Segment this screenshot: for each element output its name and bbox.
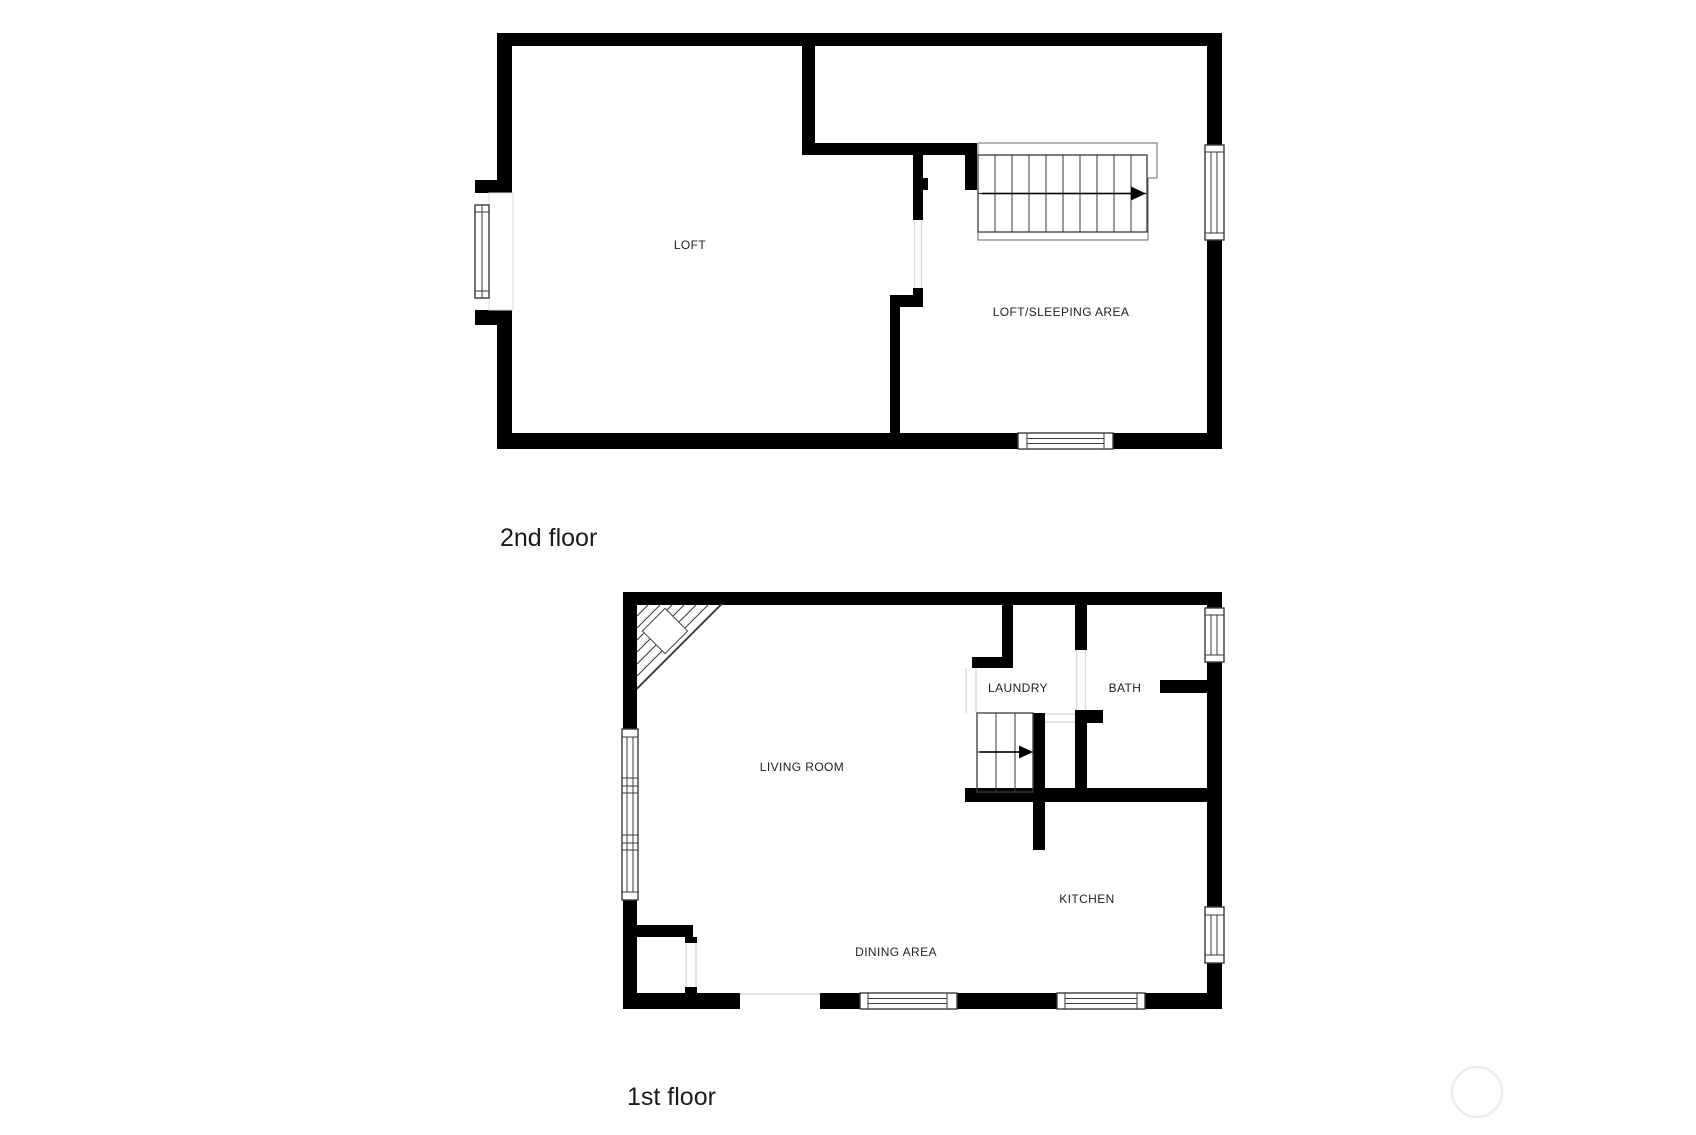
floor-title-1st: 1st floor (627, 1083, 716, 1111)
staircase-upper (978, 143, 1157, 240)
wall-right-lower (1207, 240, 1222, 449)
wall-bottom-a (623, 993, 740, 1009)
room-label-loft-sleeping-area: LOFT/SLEEPING AREA (993, 305, 1130, 319)
wall-kitchen-divider (965, 788, 1207, 802)
wall-stair-jamb (965, 143, 977, 190)
watermark-logo (1452, 1067, 1502, 1117)
laundry-door-opening (966, 668, 976, 713)
window-right-bath (1205, 608, 1224, 662)
window-right (1205, 145, 1224, 240)
wall-left-upper (497, 33, 512, 180)
wall-hall (802, 143, 973, 155)
floor-plan-page: LOFT LOFT/SLEEPING AREA 2nd floor (0, 0, 1696, 1130)
room-label-loft: LOFT (674, 238, 707, 252)
wall-left-lower (497, 325, 512, 449)
wall-bottom-c (957, 993, 1057, 1009)
wall-right-b (1207, 662, 1222, 907)
wall-top (497, 33, 1222, 46)
wall-bottom-right (1113, 433, 1222, 449)
window-bottom-dining (860, 993, 957, 1009)
second-floor-plan: LOFT LOFT/SLEEPING AREA 2nd floor (475, 33, 1224, 552)
wall-bath-t-stub (1087, 710, 1103, 723)
corner-stairs (637, 604, 722, 689)
wall-stair-kitchen (1033, 713, 1045, 850)
wall-bottom-left (497, 433, 1018, 449)
window-left-triple (622, 729, 638, 900)
stair-hall-opening (1045, 714, 1075, 722)
room-label-dining-area: DINING AREA (855, 945, 937, 959)
window-right-kitchen (1205, 907, 1224, 963)
window-bottom-kitchen (1057, 993, 1145, 1009)
floorplan-svg: LOFT LOFT/SLEEPING AREA 2nd floor (0, 0, 1696, 1130)
room-label-living-room: LIVING ROOM (760, 760, 844, 774)
room-label-kitchen: KITCHEN (1059, 892, 1114, 906)
wall-laundry-bath-upper (1075, 605, 1087, 650)
wall-bottom-d (1145, 993, 1222, 1009)
wall-partition-upper (913, 155, 923, 220)
window-bottom (1018, 433, 1113, 449)
closet-door-opening (686, 943, 696, 987)
wall-loft-divider (802, 46, 815, 155)
bay-window-left (475, 180, 513, 325)
door-opening-loft (915, 220, 922, 288)
wall-partition-lower (890, 295, 900, 449)
wall-right-upper (1207, 33, 1222, 145)
wall-top (623, 592, 1222, 605)
wall-laundry-leg (972, 657, 1013, 668)
floor-title-2nd: 2nd floor (500, 524, 597, 552)
wall-bottom-b (820, 993, 860, 1009)
wall-left-lower (623, 900, 637, 1009)
room-label-bath: BATH (1109, 681, 1142, 695)
wall-right-a (1207, 592, 1222, 608)
wall-bath-bottom-stub (1160, 680, 1207, 693)
wall-left-upper (623, 592, 637, 729)
staircase-lower (977, 713, 1033, 792)
bath-door-opening (1077, 650, 1086, 710)
wall-jamb-bump (923, 178, 928, 190)
wall-laundry-bath-lower (1075, 710, 1087, 790)
first-floor-plan: LIVING ROOM LAUNDRY BATH KITCHEN DINING … (622, 592, 1224, 1111)
room-label-laundry: LAUNDRY (988, 681, 1048, 695)
stairs-direction-arrow-icon (1019, 746, 1033, 759)
